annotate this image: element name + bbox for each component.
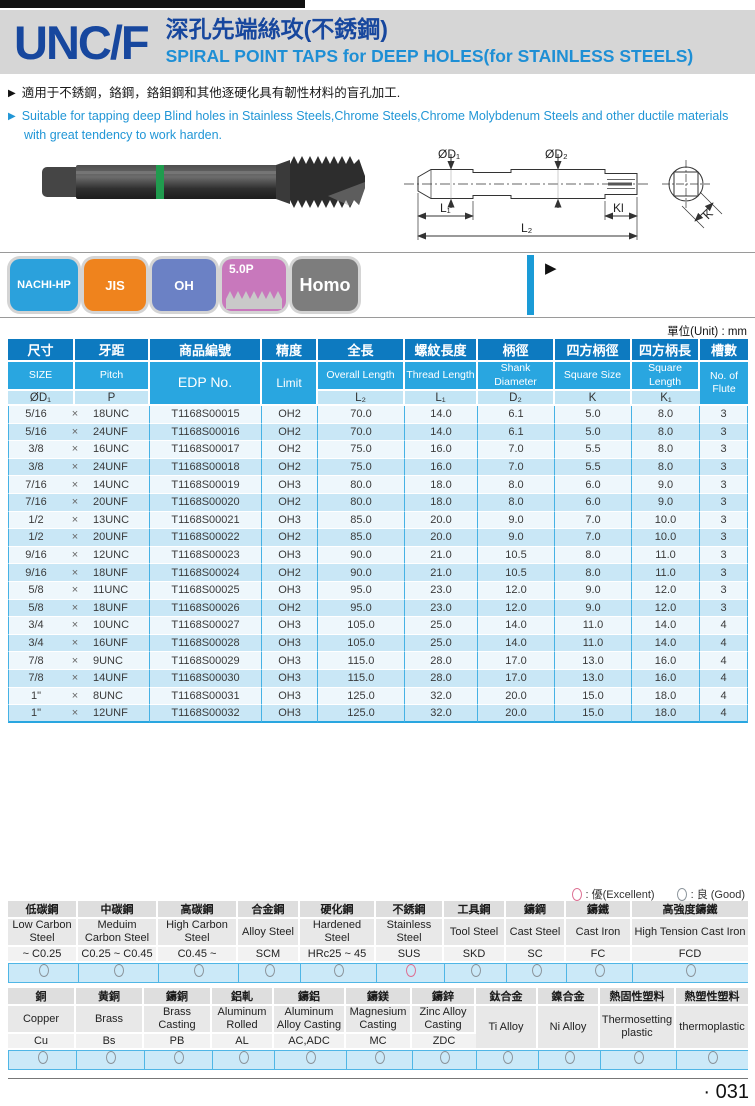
material-row-code: ~ C0.25C0.25 ~ C0.45C0.45 ~SCMHRc25 ~ 45… [8,947,748,963]
spec-cell-square-length: 14.0 [632,635,700,653]
spec-cell-edp-no: T1168S00028 [150,635,262,653]
material-name-zh: 鈦合金 [476,988,538,1006]
spec-header-cell: K₁ [632,391,700,406]
material-name-en: thermoplastic [676,1006,748,1050]
pitch-value: 20UNF [87,496,149,508]
spec-cell-square-size: 15.0 [555,688,632,706]
material-name-en: Magnesium Casting [346,1006,412,1034]
table-row: 7/16×14UNCT1168S00019OH380.018.08.06.09.… [8,476,748,494]
size-pitch-wrap: 1"×8UNC [9,690,149,702]
spec-cell-shank-diameter: 9.0 [478,529,555,547]
spec-cell-thread-length: 21.0 [405,547,478,565]
spec-cell-square-size: 9.0 [555,600,632,618]
size-pitch-wrap: 5/8×11UNC [9,584,149,596]
size-pitch-wrap: 7/8×9UNC [9,655,149,667]
spec-header-cell: L₂ [318,391,405,406]
material-name-zh: 合金鋼 [238,901,300,919]
spec-cell-shank-diameter: 10.5 [478,547,555,565]
badge-label: NACHI-HP [17,279,71,291]
table-row: 7/16×20UNFT1168S00020OH280.018.08.06.09.… [8,494,748,512]
spec-cell-flute-count: 3 [700,476,748,494]
pitch-value: 13UNC [87,514,149,526]
badge-row: NACHI-HPJISOH5.0PHomo ▶ [0,252,755,318]
feature-bullet-zh-text: 適用于不銹鋼，鉻鋼，鉻鉬鋼和其他逐硬化具有韌性材料的盲孔加工. [22,86,400,100]
size-value: 3/4 [9,637,63,649]
rating-legend: : 優(Excellent) : 良 (Good) [572,886,745,902]
spec-cell-square-size: 13.0 [555,670,632,688]
pitch-value: 24UNF [87,426,149,438]
material-name-zh: 低碳鋼 [8,901,78,919]
excellent-circle-icon [406,964,416,977]
size-value: 7/16 [9,496,63,508]
spec-header-cell: Square Length [632,362,700,391]
bullet-triangle-icon: ▶ [8,88,16,99]
material-row-en: CopperBrassBrass CastingAluminum RolledA… [8,1006,748,1034]
material-code: SUS [376,947,444,963]
table-row: 9/16×18UNFT1168S00024OH290.021.010.58.01… [8,564,748,582]
material-name-zh: 鑄鎂 [346,988,412,1006]
material-name-zh: 工具鋼 [444,901,506,919]
page-title-en: SPIRAL POINT TAPS for DEEP HOLES(for STA… [166,46,694,67]
material-name-zh: 不銹鋼 [376,901,444,919]
times-symbol: × [63,619,87,631]
pitch-value: 16UNC [87,443,149,455]
material-code: MC [346,1034,412,1050]
spec-cell-shank-diameter: 6.1 [478,424,555,442]
spec-cell-overall-length: 125.0 [318,705,405,723]
spec-cell-thread-length: 32.0 [405,705,478,723]
material-name-en: High Carbon Steel [158,919,238,947]
material-name-en: Hardened Steel [300,919,376,947]
spec-cell-edp-no: T1168S00024 [150,564,262,582]
material-name-zh: 黄銅 [76,988,144,1006]
spec-table-head: 尺寸牙距商品編號精度全長螺紋長度柄徑四方柄徑四方柄長槽數SIZEPitchEDP… [8,339,748,406]
good-circle-icon [677,888,687,901]
spec-cell-square-size: 15.0 [555,705,632,723]
size-value: 3/8 [9,461,63,473]
spec-cell-size-pitch: 1"×12UNF [8,705,150,723]
badge-oh: OH [152,259,216,311]
dim-label-k: K [700,207,716,223]
spec-cell-flute-count: 3 [700,406,748,424]
spec-cell-edp-no: T1168S00026 [150,600,262,618]
spec-cell-thread-length: 14.0 [405,424,478,442]
spec-header-cell: SIZE [8,362,75,391]
dimension-diagram: ØD₁ ØD₂ L₁ L₂ Kl K [394,146,750,258]
spec-cell-shank-diameter: 9.0 [478,512,555,530]
material-name-zh: 鑄鋁 [274,988,346,1006]
spec-cell-flute-count: 3 [700,529,748,547]
material-name-zh: 銅 [8,988,76,1006]
spec-header-cell: Limit [262,362,318,406]
spec-header-cell: No. of Flute [700,362,748,406]
size-value: 5/8 [9,584,63,596]
thread-profile-icon [226,287,282,309]
spec-header-row-en: SIZEPitchEDP No.LimitOverall LengthThrea… [8,362,748,391]
size-value: 9/16 [9,549,63,561]
material-rating-good [476,1050,538,1070]
spec-cell-flute-count: 3 [700,424,748,442]
material-name-zh: 鋁軋 [212,988,274,1006]
material-code: HRc25 ~ 45 [300,947,376,963]
spec-cell-overall-length: 75.0 [318,459,405,477]
material-name-zh: 高碳鋼 [158,901,238,919]
spec-cell-flute-count: 4 [700,705,748,723]
spec-header-cell: Pitch [75,362,150,391]
spec-cell-square-size: 6.0 [555,476,632,494]
spec-cell-thread-length: 23.0 [405,582,478,600]
size-value: 7/16 [9,479,63,491]
material-rating-good [8,1050,76,1070]
material-name-zh: 中碳鋼 [78,901,158,919]
spec-cell-flute-count: 4 [700,688,748,706]
spec-cell-flute-count: 3 [700,494,748,512]
spec-cell-limit: OH2 [262,529,318,547]
spec-cell-limit: OH2 [262,406,318,424]
material-row-rating [8,1050,748,1070]
times-symbol: × [63,496,87,508]
pitch-value: 8UNC [87,690,149,702]
spec-cell-thread-length: 18.0 [405,494,478,512]
good-circle-icon [39,964,49,977]
spec-cell-overall-length: 75.0 [318,441,405,459]
spec-cell-square-length: 16.0 [632,652,700,670]
spec-cell-flute-count: 4 [700,635,748,653]
spec-header-cell: D₂ [478,391,555,406]
spec-cell-shank-diameter: 7.0 [478,459,555,477]
size-value: 1/2 [9,514,63,526]
badge-list: NACHI-HPJISOH5.0PHomo [10,259,358,311]
spec-cell-edp-no: T1168S00017 [150,441,262,459]
spec-table-body: 5/16×18UNCT1168S00015OH270.014.06.15.08.… [8,406,748,723]
spec-table: 尺寸牙距商品編號精度全長螺紋長度柄徑四方柄徑四方柄長槽數SIZEPitchEDP… [8,339,748,723]
spec-cell-limit: OH2 [262,600,318,618]
unit-note: 單位(Unit) : mm [667,323,747,339]
spec-cell-shank-diameter: 14.0 [478,635,555,653]
spec-cell-limit: OH2 [262,441,318,459]
spec-header-cell: 槽數 [700,339,748,362]
good-circle-icon [503,1051,513,1064]
good-circle-icon [334,964,344,977]
spec-cell-overall-length: 85.0 [318,512,405,530]
spec-header-cell: EDP No. [150,362,262,406]
material-name-en: Aluminum Rolled [212,1006,274,1034]
spec-cell-limit: OH3 [262,512,318,530]
tap-shank [76,165,278,199]
good-circle-icon [306,1051,316,1064]
material-code: C0.25 ~ C0.45 [78,947,158,963]
table-row: 5/16×24UNFT1168S00016OH270.014.06.15.08.… [8,424,748,442]
spec-cell-size-pitch: 7/16×20UNF [8,494,150,512]
legend-excellent-label: : 優(Excellent) [586,886,655,902]
spec-cell-shank-diameter: 12.0 [478,582,555,600]
material-rating-good [538,1050,600,1070]
spec-cell-shank-diameter: 14.0 [478,617,555,635]
spec-cell-thread-length: 20.0 [405,529,478,547]
times-symbol: × [63,672,87,684]
pitch-value: 11UNC [87,584,149,596]
badge-homo: Homo [292,259,358,311]
spec-cell-thread-length: 28.0 [405,652,478,670]
size-pitch-wrap: 5/16×18UNC [9,408,149,420]
badge-label: OH [174,278,194,293]
pitch-value: 9UNC [87,655,149,667]
times-symbol: × [63,602,87,614]
spec-cell-edp-no: T1168S00020 [150,494,262,512]
spec-cell-edp-no: T1168S00016 [150,424,262,442]
spec-cell-flute-count: 3 [700,564,748,582]
spec-cell-limit: OH3 [262,476,318,494]
size-value: 3/8 [9,443,63,455]
material-name-en: Brass [76,1006,144,1034]
pitch-value: 14UNF [87,672,149,684]
spec-cell-flute-count: 3 [700,441,748,459]
material-row-zh: 低碳鋼中碳鋼高碳鋼合金鋼硬化鋼不銹鋼工具鋼鑄鋼鑄鐵高強度鑄鐵 [8,901,748,919]
good-circle-icon [686,964,696,977]
material-code: FC [566,947,632,963]
spec-cell-thread-length: 14.0 [405,406,478,424]
spec-cell-flute-count: 4 [700,617,748,635]
spec-cell-edp-no: T1168S00029 [150,652,262,670]
dim-label-l2: L₂ [521,221,533,235]
spec-cell-shank-diameter: 8.0 [478,494,555,512]
material-name-en: Ti Alloy [476,1006,538,1050]
spec-cell-shank-diameter: 17.0 [478,670,555,688]
table-row: 1/2×13UNCT1168S00021OH385.020.09.07.010.… [8,512,748,530]
size-value: 5/16 [9,408,63,420]
material-name-zh: 熱塑性塑料 [676,988,748,1006]
spec-header-cell: K [555,391,632,406]
good-circle-icon [194,964,204,977]
spec-header-cell: 牙距 [75,339,150,362]
table-row: 5/8×11UNCT1168S00025OH395.023.012.09.012… [8,582,748,600]
spec-header-row-symbols: ØD₁PL₂L₁D₂KK₁ [8,391,748,406]
spec-cell-size-pitch: 1/2×13UNC [8,512,150,530]
spec-cell-limit: OH2 [262,424,318,442]
table-row: 3/8×24UNFT1168S00018OH275.016.07.05.58.0… [8,459,748,477]
spec-cell-square-length: 8.0 [632,459,700,477]
material-name-en: Aluminum Alloy Casting [274,1006,346,1034]
spec-cell-square-length: 18.0 [632,705,700,723]
material-name-en: Stainless Steel [376,919,444,947]
spec-cell-edp-no: T1168S00025 [150,582,262,600]
spec-cell-limit: OH2 [262,494,318,512]
pitch-value: 14UNC [87,479,149,491]
material-name-zh: 熱固性塑料 [600,988,676,1006]
spec-cell-square-size: 8.0 [555,564,632,582]
material-rating-good [144,1050,212,1070]
material-code: SC [506,947,566,963]
materials-table-steels-body: 低碳鋼中碳鋼高碳鋼合金鋼硬化鋼不銹鋼工具鋼鑄鋼鑄鐵高強度鑄鐵Low Carbon… [8,901,748,983]
pitch-value: 12UNC [87,549,149,561]
spec-cell-thread-length: 25.0 [405,617,478,635]
spec-cell-size-pitch: 1"×8UNC [8,688,150,706]
spec-cell-shank-diameter: 20.0 [478,705,555,723]
legend-good-label: : 良 (Good) [691,886,745,902]
badge-nachi-hp: NACHI-HP [10,259,78,311]
times-symbol: × [63,690,87,702]
spec-cell-square-size: 7.0 [555,512,632,530]
times-symbol: × [63,567,87,579]
size-pitch-wrap: 5/16×24UNF [9,426,149,438]
spec-cell-shank-diameter: 20.0 [478,688,555,706]
spec-cell-flute-count: 3 [700,512,748,530]
material-code: Cu [8,1034,76,1050]
title-block: 深孔先端絲攻(不銹鋼) SPIRAL POINT TAPS for DEEP H… [166,17,694,66]
spec-cell-edp-no: T1168S00030 [150,670,262,688]
spec-cell-thread-length: 25.0 [405,635,478,653]
spec-cell-size-pitch: 9/16×12UNC [8,547,150,565]
feature-bullet-en-text: Suitable for tapping deep Blind holes in… [22,109,729,142]
material-name-en: High Tension Cast Iron [632,919,748,947]
table-row: 7/8×9UNCT1168S00029OH3115.028.017.013.01… [8,652,748,670]
series-code: UNC/F [14,15,148,70]
legend-good: : 良 (Good) [677,886,745,902]
size-pitch-wrap: 1"×12UNF [9,707,149,719]
size-value: 1" [9,707,63,719]
spec-cell-flute-count: 3 [700,600,748,618]
times-symbol: × [63,408,87,420]
spec-cell-overall-length: 80.0 [318,476,405,494]
table-row: 5/8×18UNFT1168S00026OH295.023.012.09.012… [8,600,748,618]
spec-header-cell: 全長 [318,339,405,362]
spec-cell-size-pitch: 3/4×16UNF [8,635,150,653]
good-circle-icon [114,964,124,977]
spec-cell-limit: OH3 [262,688,318,706]
spec-cell-edp-no: T1168S00021 [150,512,262,530]
spec-cell-limit: OH3 [262,652,318,670]
spec-cell-shank-diameter: 7.0 [478,441,555,459]
spec-cell-edp-no: T1168S00022 [150,529,262,547]
size-pitch-wrap: 1/2×13UNC [9,514,149,526]
pitch-value: 18UNF [87,602,149,614]
page-header: UNC/F 深孔先端絲攻(不銹鋼) SPIRAL POINT TAPS for … [0,10,755,74]
material-name-zh: 硬化鋼 [300,901,376,919]
spec-cell-overall-length: 90.0 [318,547,405,565]
page-number: · 031 [703,1081,749,1104]
spec-cell-size-pitch: 3/4×10UNC [8,617,150,635]
pitch-value: 10UNC [87,619,149,631]
spec-cell-square-size: 5.5 [555,459,632,477]
legend-excellent: : 優(Excellent) [572,886,655,902]
spec-cell-square-length: 14.0 [632,617,700,635]
spec-cell-size-pitch: 3/8×24UNF [8,459,150,477]
good-circle-icon [708,1051,718,1064]
good-circle-icon [634,1051,644,1064]
spec-cell-square-length: 8.0 [632,441,700,459]
spec-cell-square-size: 13.0 [555,652,632,670]
table-row: 3/8×16UNCT1168S00017OH275.016.07.05.58.0… [8,441,748,459]
material-name-en: Ni Alloy [538,1006,600,1050]
size-pitch-wrap: 3/4×16UNF [9,637,149,649]
spec-cell-square-length: 18.0 [632,688,700,706]
footer-rule [8,1078,748,1079]
spec-cell-overall-length: 95.0 [318,582,405,600]
table-row: 7/8×14UNFT1168S00030OH3115.028.017.013.0… [8,670,748,688]
spec-header-cell: Shank Diameter [478,362,555,391]
dim-label-kl: Kl [613,201,624,215]
size-value: 7/8 [9,672,63,684]
spec-cell-square-size: 7.0 [555,529,632,547]
material-row-zh: 銅黄銅鑄銅鋁軋鑄鋁鑄鎂鑄鋅鈦合金鎳合金熱固性塑料熱塑性塑料 [8,988,748,1006]
good-circle-icon [565,1051,575,1064]
times-symbol: × [63,584,87,596]
spec-cell-edp-no: T1168S00027 [150,617,262,635]
material-code: AC,ADC [274,1034,346,1050]
tap-green-ring [156,165,164,199]
size-value: 5/16 [9,426,63,438]
spec-cell-square-length: 11.0 [632,547,700,565]
tap-photo [28,148,388,244]
material-name-en: Meduim Carbon Steel [78,919,158,947]
times-symbol: × [63,707,87,719]
spec-cell-limit: OH2 [262,564,318,582]
material-name-zh: 高強度鑄鐵 [632,901,748,919]
spec-cell-overall-length: 105.0 [318,635,405,653]
size-pitch-wrap: 5/8×18UNF [9,602,149,614]
size-value: 3/4 [9,619,63,631]
material-rating-good [238,963,300,983]
material-name-en: Brass Casting [144,1006,212,1034]
spec-cell-limit: OH3 [262,670,318,688]
times-symbol: × [63,479,87,491]
spec-cell-overall-length: 125.0 [318,688,405,706]
spec-header-cell: Thread Length [405,362,478,391]
pitch-value: 12UNF [87,707,149,719]
size-pitch-wrap: 7/16×14UNC [9,479,149,491]
good-circle-icon [532,964,542,977]
material-rating-excellent [376,963,444,983]
spec-cell-thread-length: 20.0 [405,512,478,530]
material-rating-good [274,1050,346,1070]
spec-cell-overall-length: 70.0 [318,424,405,442]
material-name-en: Thermosetting plastic [600,1006,676,1050]
material-code: PB [144,1034,212,1050]
badge-label: JIS [105,278,125,293]
spec-cell-square-size: 11.0 [555,635,632,653]
pitch-value: 24UNF [87,461,149,473]
spec-cell-square-length: 12.0 [632,600,700,618]
spec-cell-square-length: 10.0 [632,512,700,530]
spec-cell-overall-length: 80.0 [318,494,405,512]
good-circle-icon [174,1051,184,1064]
spec-cell-square-size: 5.0 [555,424,632,442]
material-rating-good [158,963,238,983]
spec-cell-shank-diameter: 17.0 [478,652,555,670]
spec-header-row-zh: 尺寸牙距商品編號精度全長螺紋長度柄徑四方柄徑四方柄長槽數 [8,339,748,362]
spec-cell-thread-length: 23.0 [405,600,478,618]
material-code: SCM [238,947,300,963]
material-code: SKD [444,947,506,963]
material-rating-good [212,1050,274,1070]
dim-label-d2: ØD₂ [545,147,568,161]
size-value: 9/16 [9,567,63,579]
material-name-en: Cast Steel [506,919,566,947]
times-symbol: × [63,426,87,438]
spec-cell-square-length: 12.0 [632,582,700,600]
good-circle-icon [471,964,481,977]
spec-header-cell: 螺紋長度 [405,339,478,362]
size-value: 1/2 [9,531,63,543]
spec-cell-size-pitch: 7/8×9UNC [8,652,150,670]
material-name-zh: 鑄鋅 [412,988,476,1006]
badge-label: Homo [300,275,351,296]
spec-cell-limit: OH3 [262,617,318,635]
spec-cell-thread-length: 16.0 [405,459,478,477]
times-symbol: × [63,443,87,455]
material-name-zh: 鎳合金 [538,988,600,1006]
material-name-en: Tool Steel [444,919,506,947]
